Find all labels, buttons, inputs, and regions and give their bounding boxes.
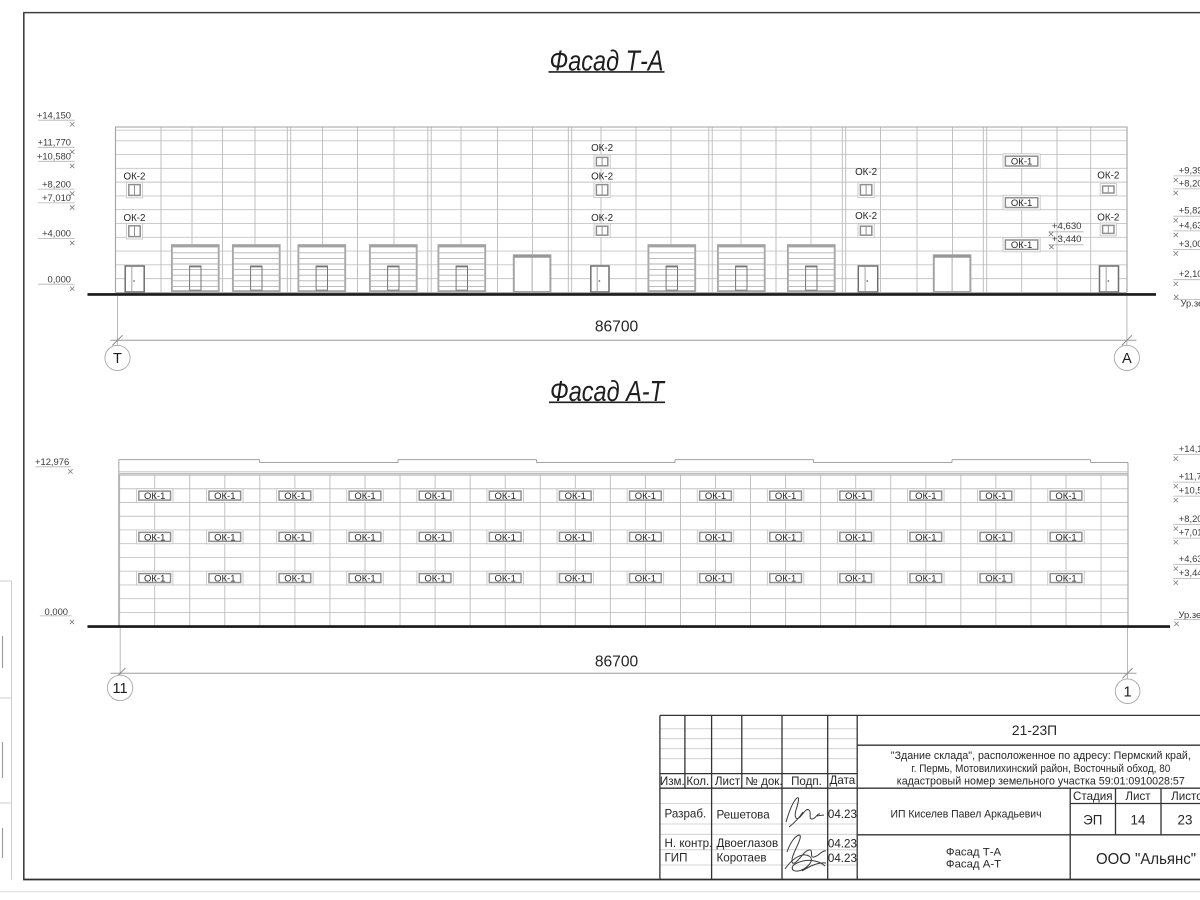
svg-text:ОК-1: ОК-1	[424, 532, 445, 543]
svg-text:Коротаев: Коротаев	[717, 852, 767, 865]
svg-text:+8,200: +8,200	[42, 179, 71, 190]
svg-text:Ур.зем.: Ур.зем.	[1179, 609, 1200, 620]
svg-text:ГИП: ГИП	[665, 852, 688, 865]
svg-text:ОК-1: ОК-1	[915, 573, 936, 584]
svg-text:Т: Т	[113, 351, 122, 367]
svg-text:86700: 86700	[595, 318, 639, 335]
svg-text:ОК-1: ОК-1	[635, 573, 656, 584]
svg-text:+3,440: +3,440	[1052, 234, 1082, 245]
svg-text:Кол.: Кол.	[686, 775, 709, 788]
svg-text:1: 1	[1124, 684, 1132, 700]
svg-text:ОК-1: ОК-1	[985, 532, 1006, 543]
svg-text:+7,010: +7,010	[1179, 527, 1200, 538]
svg-text:ОК-1: ОК-1	[354, 532, 375, 543]
svg-text:04.23: 04.23	[828, 852, 857, 865]
svg-text:ОК-1: ОК-1	[284, 573, 305, 584]
svg-text:ОК-1: ОК-1	[214, 491, 235, 502]
svg-text:+4,000: +4,000	[42, 228, 71, 239]
svg-text:23: 23	[1178, 813, 1193, 828]
svg-text:Разраб.: Разраб.	[665, 807, 707, 820]
svg-text:ОК-2: ОК-2	[591, 172, 613, 183]
svg-text:Фасад А-Т: Фасад А-Т	[946, 858, 1001, 870]
svg-text:ОК-1: ОК-1	[985, 573, 1006, 584]
svg-text:Н. контр.: Н. контр.	[665, 837, 713, 850]
svg-text:+14,150: +14,150	[37, 109, 71, 120]
svg-text:+5,820: +5,820	[1179, 205, 1200, 216]
svg-text:ОК-1: ОК-1	[565, 573, 586, 584]
svg-text:ОК-2: ОК-2	[591, 143, 613, 154]
svg-text:ОК-1: ОК-1	[845, 491, 866, 502]
svg-text:11: 11	[113, 681, 128, 697]
svg-text:ОК-1: ОК-1	[845, 573, 866, 584]
svg-text:ОК-1: ОК-1	[635, 532, 656, 543]
svg-text:ОК-1: ОК-1	[635, 491, 656, 502]
svg-text:ОК-1: ОК-1	[1011, 240, 1032, 251]
svg-text:ОК-2: ОК-2	[1097, 212, 1119, 223]
svg-text:ОК-1: ОК-1	[144, 491, 165, 502]
svg-text:04.23: 04.23	[828, 838, 857, 851]
svg-text:ОК-1: ОК-1	[705, 532, 726, 543]
svg-text:ОК-1: ОК-1	[214, 573, 235, 584]
svg-text:"Здание склада", расположенное: "Здание склада", расположенное по адресу…	[891, 750, 1191, 762]
svg-text:86700: 86700	[595, 653, 639, 670]
svg-text:ОК-2: ОК-2	[1097, 171, 1119, 182]
svg-text:ОК-1: ОК-1	[495, 491, 516, 502]
svg-text:+4,630: +4,630	[1179, 219, 1200, 230]
svg-text:ОК-1: ОК-1	[775, 491, 796, 502]
svg-text:+4,630: +4,630	[1052, 221, 1082, 232]
svg-text:Двоеглазов: Двоеглазов	[717, 837, 779, 850]
svg-text:ОК-1: ОК-1	[1055, 491, 1076, 502]
svg-text:+3,000: +3,000	[1179, 238, 1200, 249]
svg-text:ОК-1: ОК-1	[565, 532, 586, 543]
svg-text:+10,580: +10,580	[1179, 485, 1200, 496]
svg-text:+8,200: +8,200	[1179, 513, 1200, 524]
svg-text:0,000: 0,000	[48, 273, 71, 284]
svg-text:ООО "Альянс": ООО "Альянс"	[1096, 851, 1196, 868]
svg-text:ОК-1: ОК-1	[1055, 532, 1076, 543]
svg-text:+11,770: +11,770	[38, 137, 71, 148]
svg-text:ОК-1: ОК-1	[495, 532, 516, 543]
svg-text:+7,010: +7,010	[42, 192, 71, 203]
svg-text:ОК-2: ОК-2	[855, 211, 877, 222]
svg-text:Изм.: Изм.	[660, 775, 685, 788]
svg-text:ОК-1: ОК-1	[845, 532, 866, 543]
svg-text:ОК-1: ОК-1	[775, 573, 796, 584]
svg-text:ОК-1: ОК-1	[284, 532, 305, 543]
svg-text:Лист: Лист	[1125, 790, 1151, 803]
svg-text:№ док.: № док.	[745, 775, 782, 788]
svg-text:+4,630: +4,630	[1179, 553, 1200, 564]
svg-text:04.23: 04.23	[828, 808, 857, 821]
svg-text:+10,580: +10,580	[37, 150, 71, 161]
svg-text:+8,200: +8,200	[1179, 177, 1200, 188]
svg-text:ИП Киселев Павел Аркадьевич: ИП Киселев Павел Аркадьевич	[891, 809, 1042, 821]
svg-text:14: 14	[1131, 813, 1146, 828]
svg-text:кадастровый номер земельного у: кадастровый номер земельного участка 59:…	[897, 775, 1185, 787]
svg-text:+3,440: +3,440	[1179, 567, 1200, 578]
svg-text:Стадия: Стадия	[1073, 790, 1113, 803]
svg-text:ОК-1: ОК-1	[1011, 198, 1032, 209]
svg-text:Решетова: Решетова	[717, 808, 771, 821]
svg-text:+11,770: +11,770	[1179, 471, 1200, 482]
svg-text:ОК-2: ОК-2	[123, 172, 145, 183]
svg-text:+14,150: +14,150	[1179, 443, 1200, 454]
svg-text:ОК-1: ОК-1	[1055, 573, 1076, 584]
svg-text:ОК-1: ОК-1	[915, 491, 936, 502]
svg-text:+2,100: +2,100	[1179, 268, 1200, 279]
svg-text:ОК-1: ОК-1	[214, 532, 235, 543]
svg-text:Дата: Дата	[830, 774, 856, 787]
svg-text:0,000: 0,000	[45, 606, 68, 617]
svg-text:21-23П: 21-23П	[1012, 723, 1057, 738]
svg-text:ОК-2: ОК-2	[123, 213, 145, 224]
svg-text:ОК-1: ОК-1	[705, 573, 726, 584]
svg-text:Подп.: Подп.	[791, 775, 822, 788]
svg-text:ЭП: ЭП	[1083, 813, 1102, 828]
svg-text:Листов: Листов	[1171, 790, 1200, 803]
svg-text:Фасад Т-А: Фасад Т-А	[946, 847, 1002, 859]
svg-text:ОК-1: ОК-1	[144, 532, 165, 543]
svg-text:Лист: Лист	[715, 775, 741, 788]
svg-text:Ур.зем.: Ур.зем.	[1181, 298, 1200, 309]
svg-text:ОК-1: ОК-1	[144, 573, 165, 584]
svg-text:+9,390: +9,390	[1179, 164, 1200, 175]
svg-text:г. Пермь, Мотовилихинский райо: г. Пермь, Мотовилихинский район, Восточн…	[911, 763, 1170, 775]
svg-text:ОК-1: ОК-1	[705, 491, 726, 502]
svg-text:ОК-1: ОК-1	[354, 573, 375, 584]
svg-text:ОК-1: ОК-1	[354, 491, 375, 502]
svg-text:ОК-1: ОК-1	[424, 491, 445, 502]
svg-text:ОК-1: ОК-1	[284, 491, 305, 502]
svg-text:+12,976: +12,976	[35, 456, 69, 467]
svg-text:ОК-2: ОК-2	[591, 213, 613, 224]
svg-text:ОК-1: ОК-1	[495, 573, 516, 584]
svg-text:ОК-1: ОК-1	[775, 532, 796, 543]
svg-text:ОК-1: ОК-1	[985, 491, 1006, 502]
svg-text:ОК-1: ОК-1	[1011, 157, 1032, 168]
svg-text:ОК-1: ОК-1	[424, 573, 445, 584]
svg-text:ОК-1: ОК-1	[565, 491, 586, 502]
svg-text:А: А	[1122, 351, 1132, 367]
svg-text:ОК-1: ОК-1	[915, 532, 936, 543]
svg-text:ОК-2: ОК-2	[855, 167, 877, 178]
